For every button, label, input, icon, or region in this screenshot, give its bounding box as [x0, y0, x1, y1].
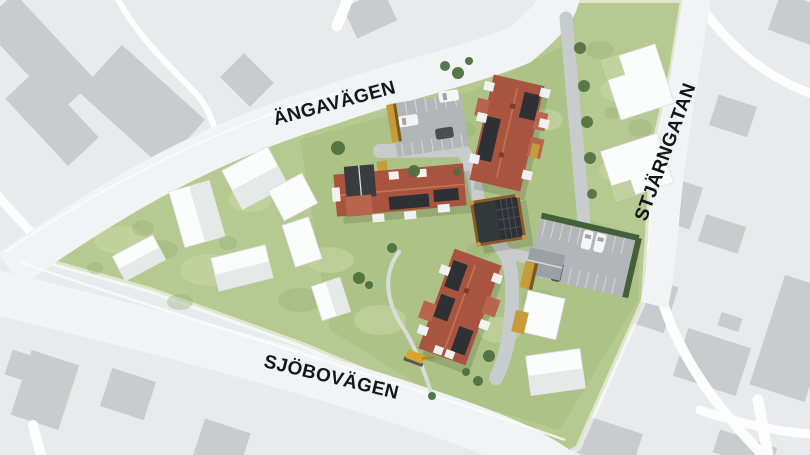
tree: [587, 189, 597, 199]
tree: [473, 376, 483, 386]
tree: [387, 243, 397, 253]
tree-shadow: [167, 294, 193, 310]
tree: [574, 42, 586, 54]
grass-patch: [586, 41, 614, 59]
tree: [408, 165, 420, 177]
dormer: [388, 171, 399, 180]
tree-shadow: [132, 220, 154, 236]
terrace: [332, 187, 341, 202]
tree: [462, 368, 470, 376]
terrace: [437, 204, 450, 213]
terrace: [372, 213, 385, 222]
post: [522, 235, 527, 240]
tree: [584, 152, 596, 164]
tree: [453, 168, 461, 176]
solar-carport: [470, 192, 534, 254]
tree-shadow: [219, 236, 237, 250]
site-plan-map: ÄNGAVÄGEN STJÄRNGATAN SJÖBOVÄGEN: [0, 0, 810, 455]
solar-panel: [433, 188, 459, 202]
tree: [483, 350, 495, 362]
post: [470, 201, 475, 206]
tree: [353, 272, 365, 284]
tree-shadow: [87, 262, 103, 274]
post: [476, 242, 481, 247]
tree-shadow: [628, 119, 652, 137]
tree: [365, 281, 373, 289]
site-plan-svg: ÄNGAVÄGEN STJÄRNGATAN SJÖBOVÄGEN: [0, 0, 810, 455]
tree: [331, 141, 345, 155]
tree: [581, 116, 593, 128]
dark-gable-wing: [344, 164, 377, 198]
tree: [578, 80, 590, 92]
white-house: [525, 348, 585, 395]
tree: [465, 57, 473, 65]
tree: [428, 392, 436, 400]
tree: [452, 67, 464, 79]
cross-gable: [345, 195, 373, 217]
post: [515, 193, 520, 198]
tree: [440, 61, 450, 71]
terrace: [404, 211, 417, 220]
